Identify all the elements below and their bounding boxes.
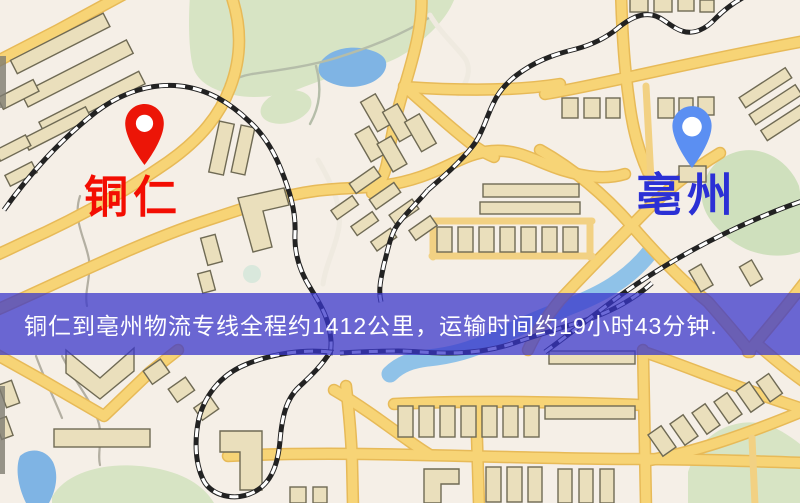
- pin-hole: [682, 117, 702, 137]
- map-edge-shadow: [0, 386, 5, 474]
- origin-location-pin-icon[interactable]: [121, 102, 168, 167]
- route-summary-banner: 铜仁到亳州物流专线全程约1412公里，运输时间约19小时43分钟.: [0, 293, 800, 355]
- map-image: [0, 0, 800, 503]
- map-edge-shadow: [0, 56, 6, 108]
- destination-location-pin-icon[interactable]: [668, 104, 716, 170]
- route-summary-text: 铜仁到亳州物流专线全程约1412公里，运输时间约19小时43分钟.: [0, 307, 718, 341]
- pin-body: [125, 104, 164, 165]
- pin-hole: [136, 115, 153, 132]
- pin-body: [672, 106, 711, 168]
- map-container: 铜仁 亳州 铜仁到亳州物流专线全程约1412公里，运输时间约19小时43分钟.: [0, 0, 800, 503]
- destination-city-label: 亳州: [636, 173, 738, 219]
- origin-city-label: 铜仁: [84, 176, 182, 220]
